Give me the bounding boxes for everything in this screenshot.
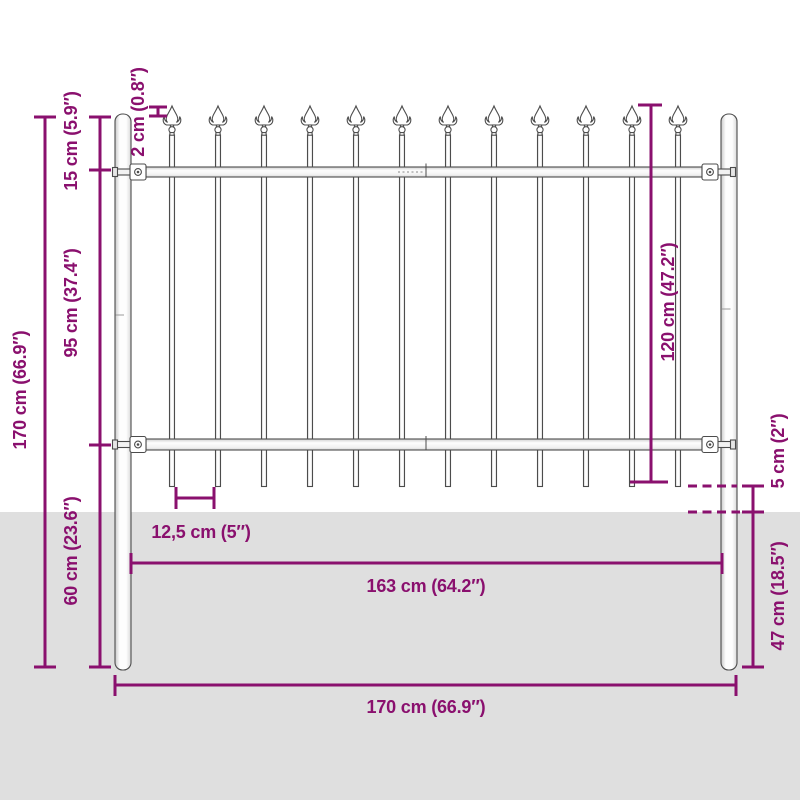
label-below-ground: 47 cm (18.5″): [769, 541, 787, 650]
top-rail: [146, 164, 702, 178]
picket: [163, 106, 181, 487]
picket: [393, 106, 411, 487]
picket-row: [163, 106, 687, 487]
label-picket-spacing: 12,5 cm (5″): [151, 523, 250, 541]
label-spear-above-post: 2 cm (0.8″): [129, 67, 147, 156]
picket: [301, 106, 319, 487]
label-panel-height: 120 cm (47.2″): [659, 243, 677, 362]
label-post-below-rail: 60 cm (23.6″): [62, 496, 80, 605]
picket: [577, 106, 595, 487]
label-top-rail-offset: 15 cm (5.9″): [62, 91, 80, 190]
dim-spear-offset-bracket: [149, 107, 167, 116]
fence-diagram-graphic: [0, 0, 800, 800]
label-ground-gap: 5 cm (2″): [769, 414, 787, 489]
picket: [255, 106, 273, 487]
picket: [485, 106, 503, 487]
label-panel-width: 163 cm (64.2″): [367, 577, 486, 595]
label-total-height: 170 cm (66.9″): [11, 331, 29, 450]
picket: [347, 106, 365, 487]
picket: [439, 106, 457, 487]
picket: [531, 106, 549, 487]
label-total-width: 170 cm (66.9″): [367, 698, 486, 716]
fence-dimension-diagram: 170 cm (66.9″) 15 cm (5.9″) 95 cm (37.4″…: [0, 0, 800, 800]
left-post: [115, 114, 131, 670]
right-post: [721, 114, 737, 670]
label-rail-to-rail: 95 cm (37.4″): [62, 248, 80, 357]
bottom-rail: [146, 436, 702, 450]
picket: [209, 106, 227, 487]
dim-picket-spacing-line: [176, 487, 214, 509]
picket: [623, 106, 641, 487]
